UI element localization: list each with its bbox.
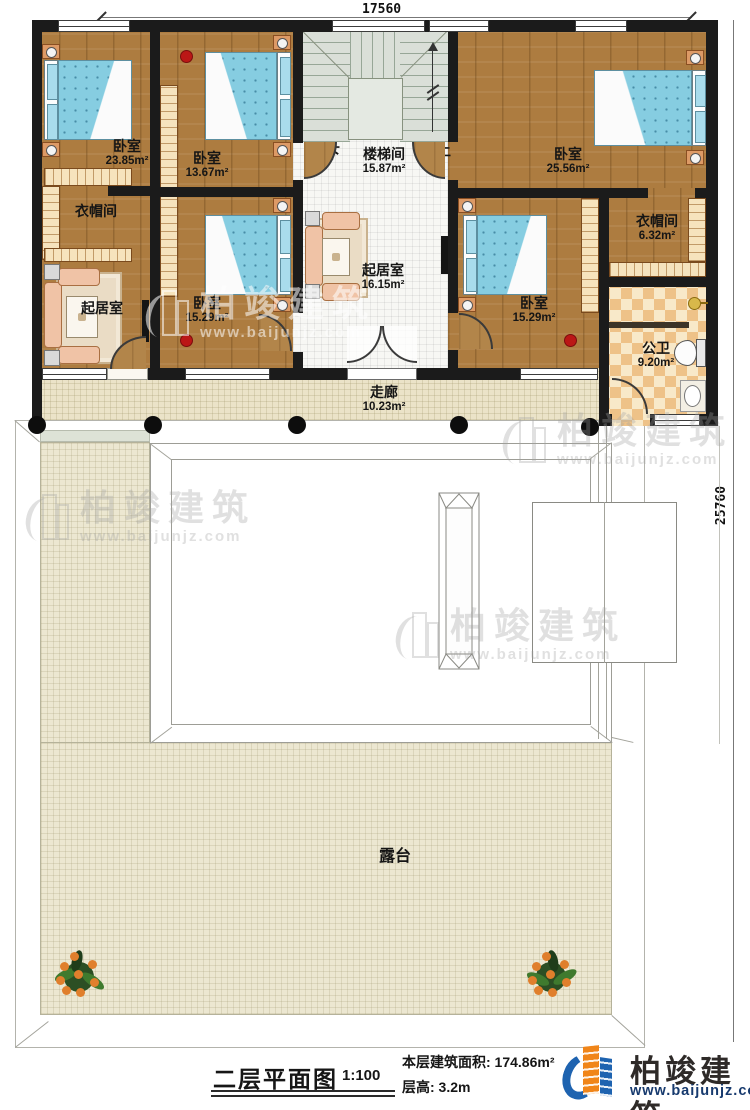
wall (270, 368, 347, 380)
lower-roof-right-edge (719, 426, 720, 744)
sofa-icon (58, 346, 100, 364)
wall (599, 414, 612, 426)
stair-landing (348, 78, 403, 140)
window (58, 20, 130, 32)
stair-flight-left (303, 31, 350, 142)
door-sill (107, 368, 148, 380)
brand-website: www.baijunjz.com (630, 1083, 750, 1099)
plant-pot-icon (180, 50, 193, 63)
terrace-step-band (40, 430, 150, 442)
title-underline (211, 1090, 395, 1092)
nightstand-icon (686, 50, 704, 65)
wall (148, 368, 185, 380)
column (288, 416, 306, 434)
closet-bedroom-mr (581, 198, 599, 313)
wall (108, 186, 150, 196)
bed-icon-ml (205, 215, 291, 295)
floor-height-text: 层高: 3.2m (402, 1077, 470, 1097)
nightstand-icon (458, 297, 476, 312)
plant-icon (52, 948, 108, 1004)
closet-cloakR-right (688, 198, 706, 262)
coffee-table-icon (322, 238, 350, 276)
side-table-icon (44, 264, 60, 280)
wall (599, 188, 609, 426)
room-label-bedroom-tr: 卧室25.56m² (547, 146, 590, 176)
stair-flight-top (350, 31, 400, 80)
nightstand-icon (686, 150, 704, 165)
sofa-icon (322, 212, 360, 230)
wall (150, 20, 160, 380)
roof-ridge-center (604, 502, 605, 663)
shower-pipe (700, 302, 708, 304)
column (581, 418, 599, 436)
wall (417, 368, 520, 380)
window (520, 368, 598, 380)
toilet-tank-icon (696, 339, 706, 367)
window (185, 368, 270, 380)
shower-partition (609, 322, 689, 328)
closet-cloakR-bottom (609, 262, 706, 277)
drawing-scale: 1:100 (342, 1067, 380, 1084)
window (575, 20, 627, 32)
double-door-sill (347, 368, 417, 380)
side-table-icon (44, 350, 60, 366)
wall (448, 180, 458, 313)
nightstand-icon (273, 198, 291, 213)
room-label-living-left: 起居室 (81, 300, 123, 317)
bed-icon-tm (205, 52, 291, 140)
plant-pot-icon (564, 334, 577, 347)
wall (32, 368, 42, 380)
wall (160, 187, 293, 197)
floorplan-canvas: 17560 25760 露台 (0, 0, 750, 1110)
roof-ridge-upper-a (598, 420, 599, 502)
bed-icon-mr (463, 215, 547, 295)
floor-area-text: 本层建筑面积: 174.86m² (402, 1052, 554, 1072)
dimension-right-line (733, 20, 734, 1042)
column (450, 416, 468, 434)
nightstand-icon (273, 142, 291, 157)
wall (448, 20, 458, 142)
room-label-bedroom-tl: 卧室23.85m² (106, 138, 149, 168)
nightstand-icon (42, 142, 60, 157)
closet-tl-bottom (44, 168, 132, 186)
title-underline2 (211, 1095, 395, 1097)
room-label-bedroom-tm: 卧室13.67m² (186, 150, 229, 180)
room-label-bedroom-mr: 卧室15.29m² (513, 295, 556, 325)
sofa-icon (44, 282, 62, 348)
room-label-corridor: 走廊10.23m² (363, 384, 406, 414)
roof-ridge-lower-b (606, 663, 607, 739)
wall (458, 188, 648, 198)
sofa-icon (58, 268, 100, 286)
column (28, 416, 46, 434)
plant-pot-icon (180, 334, 193, 347)
room-label-living-center: 起居室16.15m² (362, 262, 405, 292)
column (144, 416, 162, 434)
window (654, 414, 700, 426)
wall (32, 20, 42, 420)
wall (700, 414, 718, 426)
nightstand-icon (273, 297, 291, 312)
closet-cloakL-bottom (44, 248, 132, 262)
wall (293, 180, 303, 313)
side-table-icon (305, 284, 320, 299)
sofa-icon (305, 226, 323, 286)
window (332, 20, 425, 32)
sink-basin-icon (684, 385, 701, 407)
room-label-bathroom: 公卫9.20m² (638, 340, 674, 370)
toilet-bowl-icon (674, 340, 697, 366)
wall (599, 277, 718, 287)
brand-name: 柏竣建筑 (630, 1046, 750, 1110)
room-label-terrace: 露台 (379, 848, 411, 867)
wall (695, 188, 706, 198)
nightstand-icon (458, 198, 476, 213)
bed-icon-tr (594, 70, 706, 146)
window (42, 368, 107, 380)
room-label-bedroom-ml: 卧室15.29m² (186, 295, 229, 325)
dimension-right: 25760 (714, 486, 729, 525)
stair-flight-right (400, 31, 448, 142)
room-label-cloakroom-left: 衣帽间 (75, 203, 117, 220)
window (429, 20, 489, 32)
brand-logo-icon (563, 1044, 623, 1104)
tv-icon (441, 236, 448, 274)
room-label-cloakroom-right: 衣帽间6.32m² (636, 213, 678, 243)
stair-arrow-up-head (428, 42, 438, 51)
drawing-title: 二层平面图 (213, 1060, 338, 1094)
nightstand-icon (42, 44, 60, 59)
dimension-top-line (100, 17, 692, 18)
room-label-stairwell: 楼梯间15.87m² (363, 146, 406, 176)
dimension-top: 17560 (362, 2, 401, 17)
bed-icon-tl (44, 60, 132, 140)
roof-ridge-lower-a (598, 663, 599, 739)
roof-court-curb (171, 459, 591, 725)
nightstand-icon (273, 35, 291, 50)
roof-ridge-upper-b (606, 420, 607, 502)
side-table-icon (305, 211, 320, 226)
sofa-icon (322, 283, 360, 301)
wall (293, 20, 303, 143)
skylight-icon (438, 492, 480, 670)
wall (706, 20, 718, 426)
plant-icon (524, 948, 580, 1004)
